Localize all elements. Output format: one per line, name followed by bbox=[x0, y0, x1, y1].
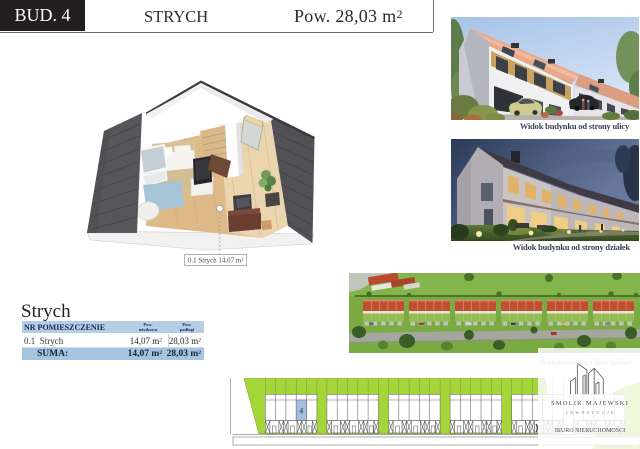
svg-text:4: 4 bbox=[299, 407, 303, 416]
svg-text:0.1 Strych 14,07 m²: 0.1 Strych 14,07 m² bbox=[188, 257, 244, 265]
